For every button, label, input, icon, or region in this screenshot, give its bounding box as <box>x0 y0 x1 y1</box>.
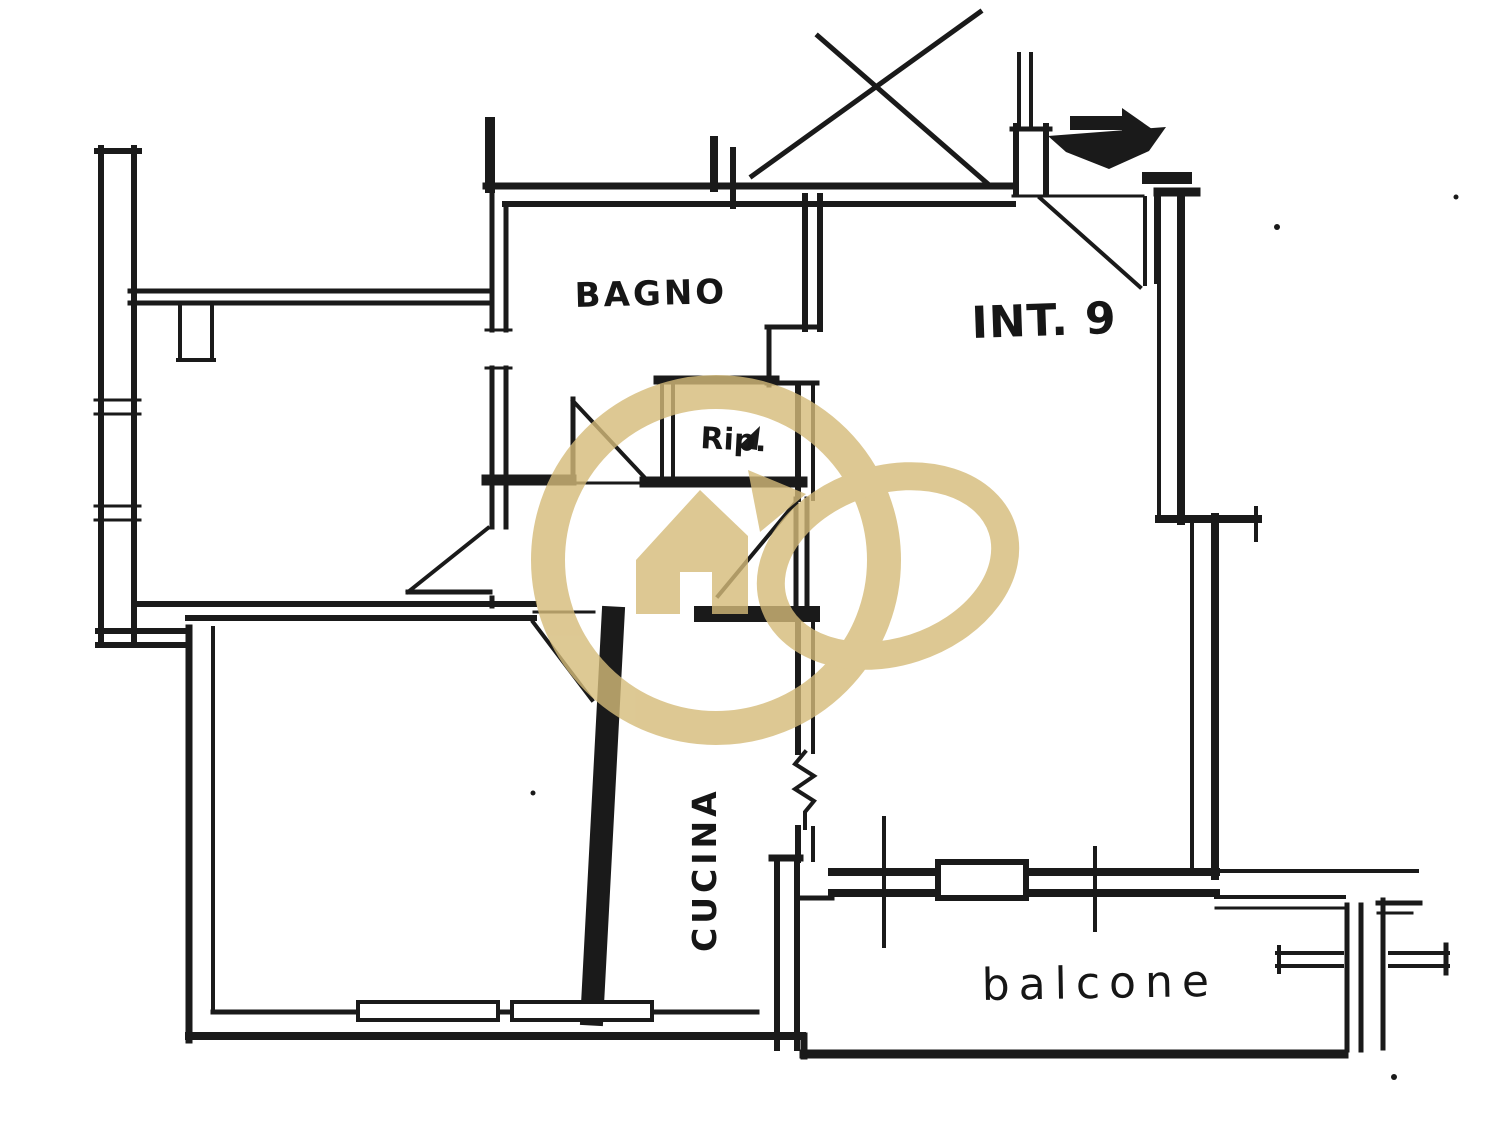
watermark-house-icon <box>636 490 748 614</box>
room-label-storage: Rip. <box>700 421 768 459</box>
entrance-arrow-icon <box>1048 108 1166 169</box>
corridor-wall <box>134 604 812 700</box>
room-label-bathroom: BAGNO <box>574 272 727 316</box>
room-label-balcony: balcone <box>981 956 1218 1011</box>
watermark-logo <box>548 392 1029 728</box>
bathroom-left-wall <box>408 122 511 606</box>
entrance-door-swing <box>1040 198 1156 287</box>
wall-break-squiggle <box>795 752 814 828</box>
balcony-walls <box>804 818 1448 1056</box>
room-label-kitchen: CUCINA <box>685 787 724 952</box>
window <box>512 1002 652 1020</box>
balcony-door-window <box>938 862 1026 898</box>
floor-plan-page: BAGNO Rip. INT. 9 CUCINA balcone <box>0 0 1500 1128</box>
window <box>358 1002 498 1020</box>
door-swing <box>408 528 488 592</box>
right-exterior-wall <box>1159 194 1417 876</box>
cross-out-mark <box>752 12 988 184</box>
bottom-exterior-wall <box>189 1002 802 1036</box>
unit-label: INT. 9 <box>971 293 1118 349</box>
floor-plan: BAGNO Rip. INT. 9 CUCINA balcone <box>0 0 1500 1128</box>
